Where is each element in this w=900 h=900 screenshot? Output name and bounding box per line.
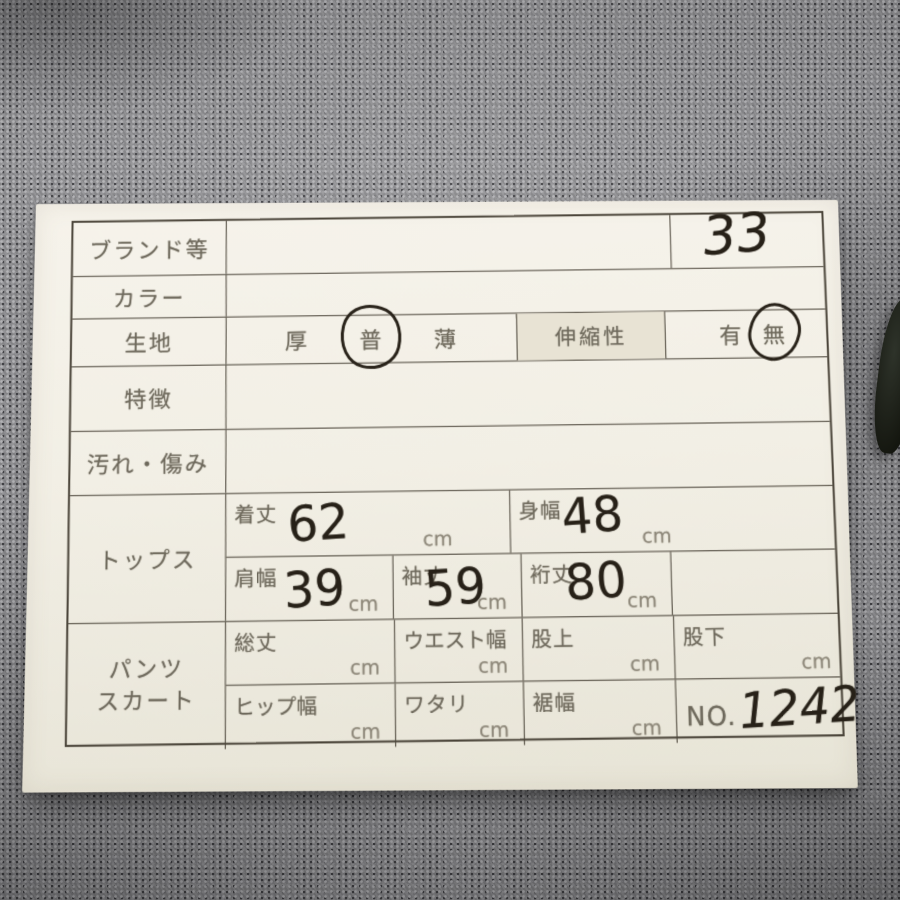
no-label: NO. — [686, 700, 737, 732]
unit-cm: cm — [478, 654, 508, 678]
measure-name: 股上 — [531, 622, 575, 653]
tops-label: トップス — [98, 541, 197, 576]
thickness-option-thick: 厚 — [285, 324, 309, 357]
measure-name: ヒップ幅 — [234, 689, 317, 721]
tops-label-cell: トップス — [68, 494, 225, 623]
stretch-label: 伸縮性 — [554, 320, 627, 351]
handwritten-value: 39 — [282, 563, 346, 617]
measure-cell-body-length: 着丈 62 cm — [226, 490, 510, 556]
bottoms-subrow-1: 総丈 cm ウエスト幅 cm 股上 cm 股下 — [226, 614, 840, 685]
measure-cell-waist-width: ウエスト幅 cm — [394, 618, 523, 682]
unit-cm: cm — [477, 591, 507, 615]
measure-name: 着丈 — [234, 498, 277, 529]
measure-name: 身幅 — [518, 494, 562, 525]
unit-cm: cm — [631, 716, 662, 740]
features-value-cell — [225, 357, 829, 429]
row-features: 特徴 — [71, 356, 830, 431]
tops-measurements: 着丈 62 cm 身幅 48 cm 肩幅 39 — [225, 486, 838, 621]
bottoms-measurements: 総丈 cm ウエスト幅 cm 股上 cm 股下 — [225, 614, 843, 749]
measure-name: 裾幅 — [532, 685, 576, 717]
tops-empty-cell — [670, 550, 838, 615]
row-bottoms: パンツ スカート 総丈 cm ウエスト幅 cm — [67, 613, 843, 751]
handwritten-value: 62 — [286, 497, 350, 550]
thickness-option-normal-circled: 普 — [359, 323, 384, 356]
unit-cm: cm — [348, 593, 378, 617]
handwritten-item-number: 1242 — [737, 678, 862, 735]
bottoms-label-line2: スカート — [96, 688, 196, 716]
brand-label: ブランド等 — [89, 232, 210, 266]
measure-cell-rise: 股上 cm — [522, 616, 675, 681]
features-label: 特徴 — [124, 381, 173, 414]
unit-cm: cm — [627, 589, 657, 613]
measure-cell-body-width: 身幅 48 cm — [509, 486, 835, 553]
stretch-options-cell: 有 無 — [664, 310, 827, 359]
tops-subrow-2: 肩幅 39 cm 袖丈 59 cm 裄丈 80 cm — [226, 549, 838, 621]
row-damage: 汚れ・傷み — [70, 421, 832, 495]
bottoms-subrow-2: ヒップ幅 cm ワタリ cm 裾幅 cm NO. — [226, 676, 843, 749]
color-label-cell: カラー — [72, 275, 225, 318]
measure-name: 肩幅 — [234, 561, 277, 592]
unit-cm: cm — [630, 652, 661, 676]
tops-subrow-1: 着丈 62 cm 身幅 48 cm — [226, 486, 835, 557]
bottoms-label-cell: パンツ スカート — [67, 622, 225, 751]
stretch-option-no-circled: 無 — [762, 317, 787, 350]
measure-name: 総丈 — [234, 626, 277, 657]
unit-cm: cm — [350, 656, 380, 680]
measurement-table: ブランド等 33 カラー 生地 厚 — [65, 211, 845, 747]
fabric-background: ブランド等 33 カラー 生地 厚 — [0, 0, 900, 900]
thickness-options-cell: 厚 普 薄 — [226, 314, 517, 365]
row-fabric: 生地 厚 普 薄 伸縮性 有 無 — [72, 309, 827, 367]
brand-number-cell: 33 — [669, 213, 823, 268]
fabric-label: 生地 — [124, 325, 173, 358]
bottoms-label-line1: パンツ — [108, 656, 184, 684]
damage-value-cell — [225, 422, 832, 493]
unit-cm: cm — [423, 528, 453, 551]
damage-label: 汚れ・傷み — [87, 445, 210, 480]
unit-cm: cm — [801, 650, 832, 674]
handwritten-brand-number: 33 — [700, 204, 773, 268]
unit-cm: cm — [642, 525, 672, 548]
measure-name: ワタリ — [404, 687, 470, 719]
row-brand: ブランド等 33 — [73, 213, 824, 276]
measure-cell-sleeve-length: 袖丈 59 cm — [392, 554, 521, 619]
measure-cell-shoulder-width: 肩幅 39 cm — [226, 556, 393, 621]
measure-cell-hem-width: 裾幅 cm — [523, 680, 677, 745]
stretch-header-cell: 伸縮性 — [516, 312, 665, 361]
row-tops: トップス 着丈 62 cm 身幅 48 cm — [68, 485, 837, 623]
measure-cell-yuki-length: 裄丈 80 cm — [520, 552, 671, 617]
brand-value-cell — [226, 215, 671, 274]
stretch-option-yes: 有 — [719, 318, 744, 351]
color-label: カラー — [113, 280, 186, 313]
features-label-cell: 特徴 — [71, 365, 226, 431]
bottoms-label: パンツ スカート — [96, 654, 196, 719]
item-number-cell: NO. 1242 — [675, 678, 843, 743]
color-value-cell — [226, 267, 826, 316]
measure-cell-inseam: 股下 cm — [673, 614, 840, 679]
unit-cm: cm — [350, 720, 380, 744]
handwritten-value: 80 — [563, 555, 628, 608]
brand-label-cell: ブランド等 — [73, 221, 226, 276]
measure-cell-thigh-width: ワタリ cm — [395, 682, 524, 747]
thickness-option-thin: 薄 — [434, 322, 459, 355]
handwritten-value: 48 — [560, 489, 625, 542]
unit-cm: cm — [479, 718, 509, 742]
damage-label-cell: 汚れ・傷み — [70, 430, 225, 495]
measure-name: ウエスト幅 — [403, 623, 507, 655]
measure-cell-total-length: 総丈 cm — [226, 620, 395, 685]
paper-card: ブランド等 33 カラー 生地 厚 — [22, 200, 858, 793]
measure-cell-hip-width: ヒップ幅 cm — [226, 684, 395, 750]
fabric-label-cell: 生地 — [72, 318, 226, 367]
measure-name: 股下 — [682, 620, 726, 651]
